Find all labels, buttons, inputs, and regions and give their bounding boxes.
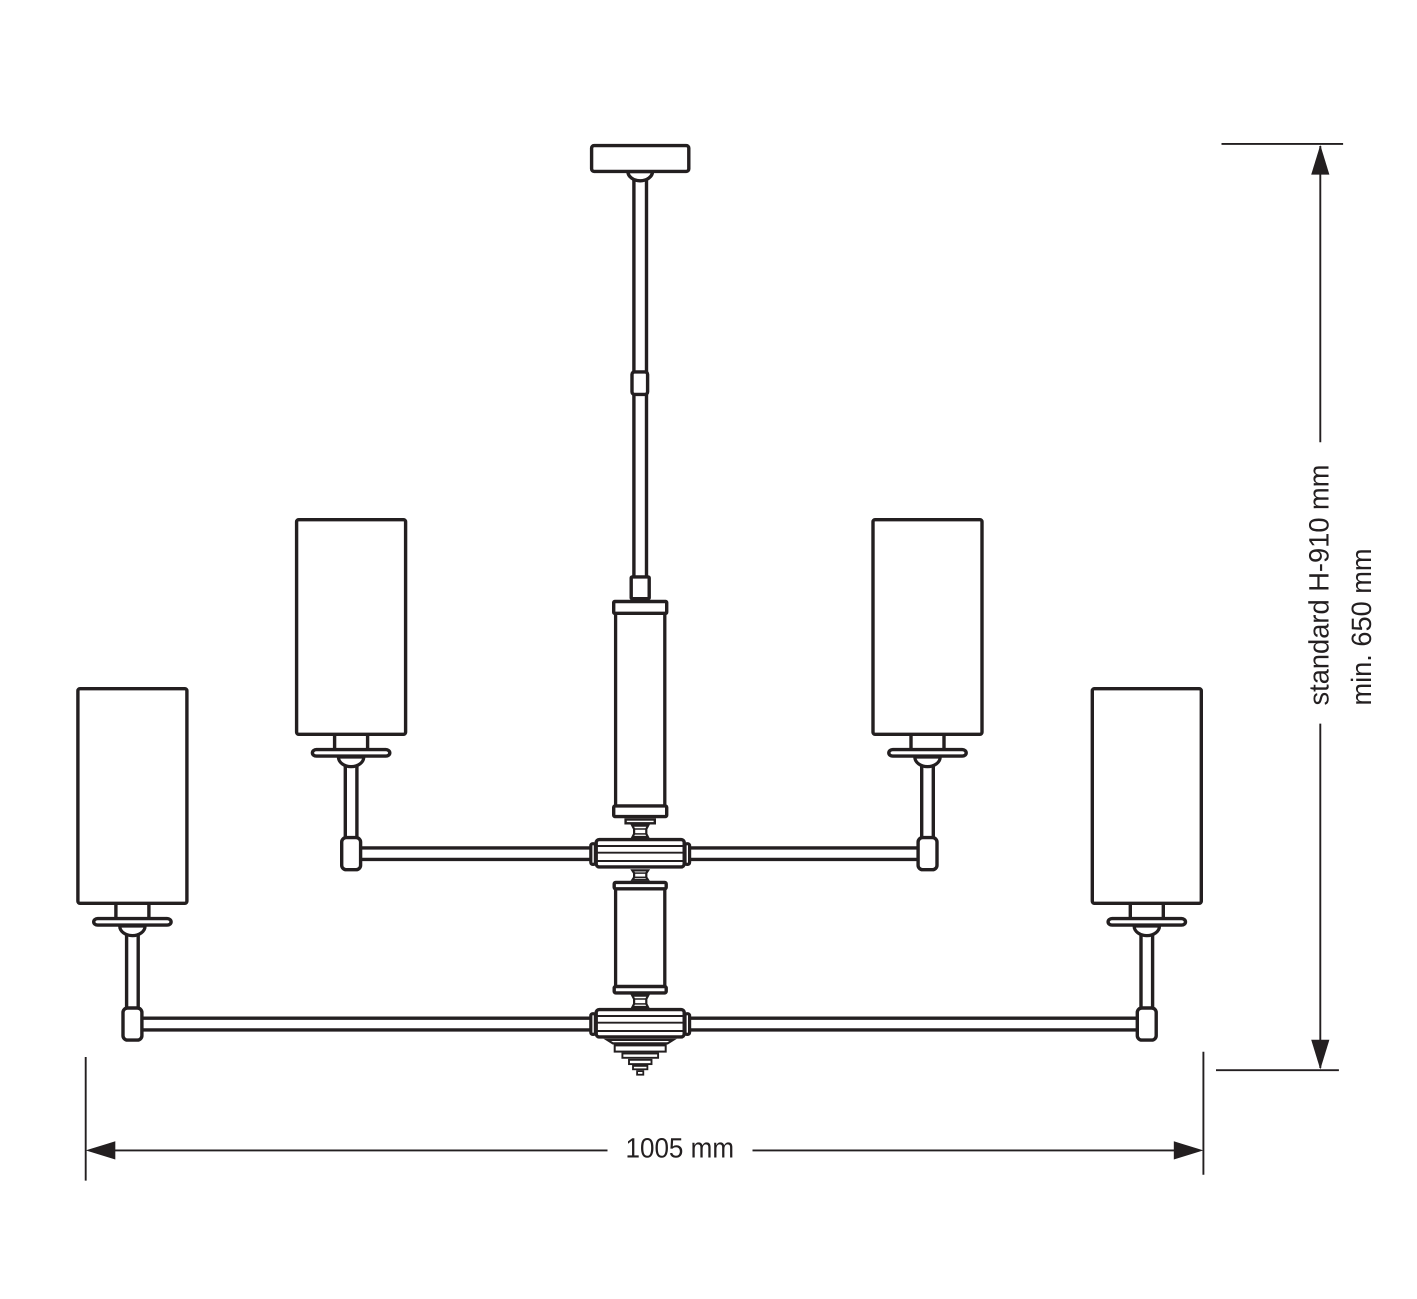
svg-text:1005 mm: 1005 mm xyxy=(626,1133,735,1164)
svg-text:standard H-910 mm: standard H-910 mm xyxy=(1303,465,1334,706)
svg-text:min. 650 mm: min. 650 mm xyxy=(1346,549,1377,706)
